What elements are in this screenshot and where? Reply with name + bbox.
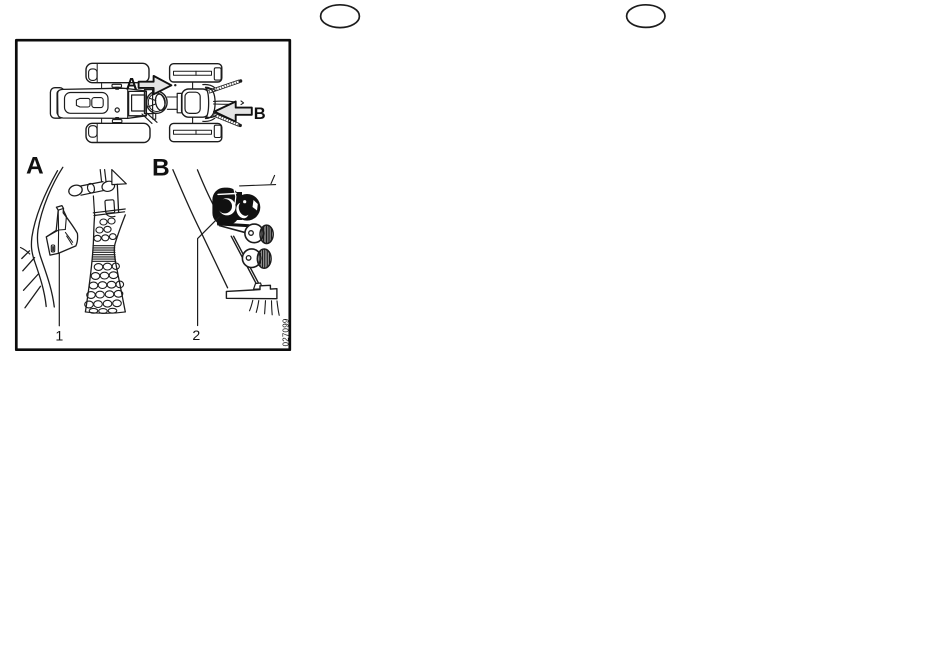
svg-text:A: A <box>26 153 44 180</box>
svg-text:2: 2 <box>192 328 200 344</box>
svg-text:1: 1 <box>55 328 63 344</box>
svg-text:A: A <box>126 75 138 93</box>
svg-text:B: B <box>254 105 266 123</box>
svg-text:B: B <box>152 155 170 182</box>
svg-text:027099: 027099 <box>281 318 290 346</box>
